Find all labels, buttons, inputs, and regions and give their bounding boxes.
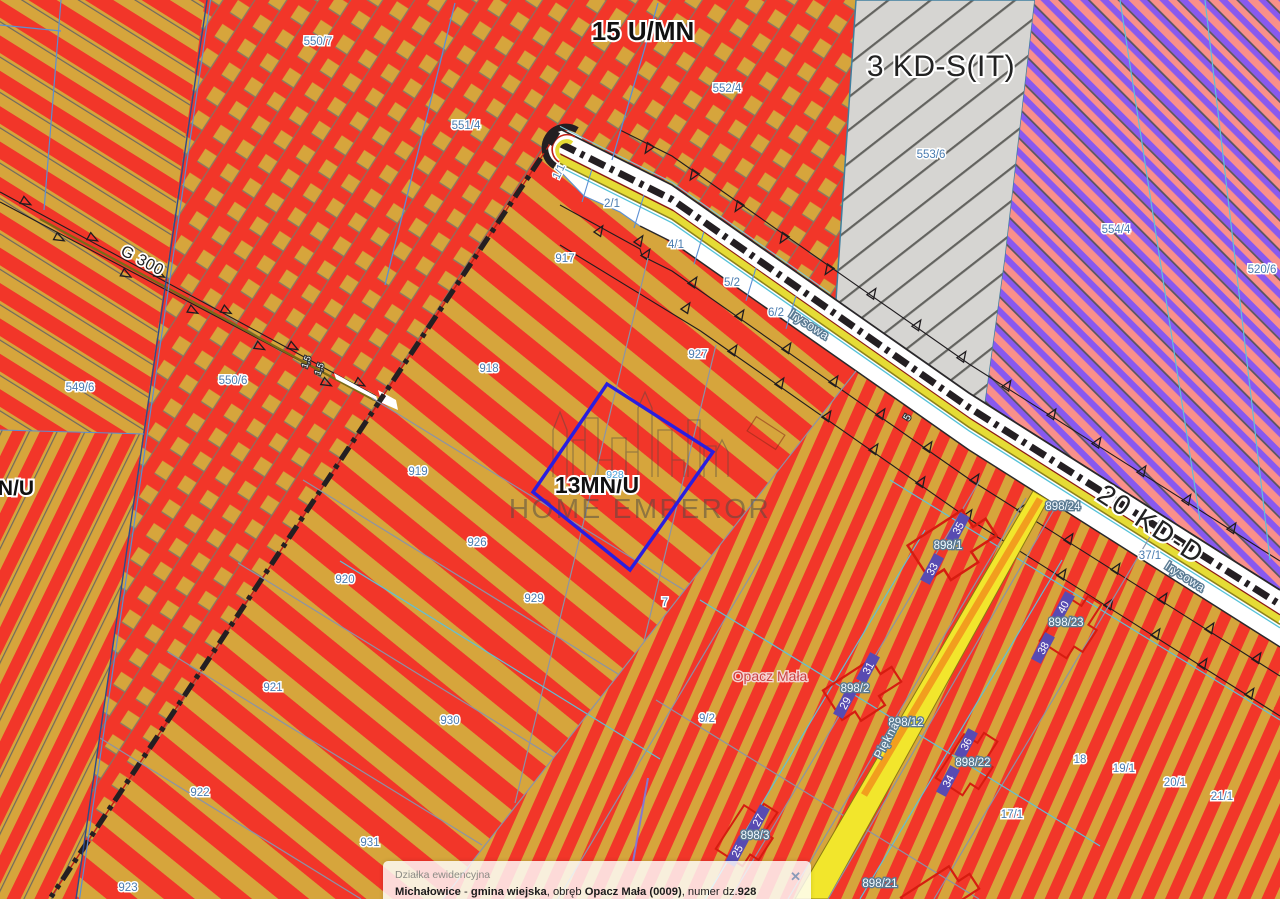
svg-text:18: 18: [1074, 754, 1087, 766]
svg-text:898/2: 898/2: [841, 683, 870, 695]
svg-text:17/1: 17/1: [1001, 809, 1023, 821]
svg-text:929: 929: [524, 593, 543, 605]
svg-text:898/23: 898/23: [1048, 617, 1083, 629]
svg-text:19/1: 19/1: [1113, 763, 1135, 775]
svg-text:2/1: 2/1: [604, 198, 620, 210]
svg-text:9/2: 9/2: [699, 713, 715, 725]
svg-text:21/1: 21/1: [1211, 791, 1233, 803]
svg-text:4/1: 4/1: [668, 239, 684, 251]
svg-text:898/22: 898/22: [955, 757, 990, 769]
svg-text:20/1: 20/1: [1164, 777, 1186, 789]
svg-text:5/2: 5/2: [724, 277, 740, 289]
svg-text:920: 920: [335, 574, 354, 586]
svg-text:898/1: 898/1: [934, 540, 963, 552]
svg-text:928: 928: [606, 469, 624, 481]
svg-text:15 U/MN: 15 U/MN: [592, 16, 695, 46]
svg-text:37/1: 37/1: [1139, 550, 1161, 562]
svg-text:549/6: 549/6: [66, 382, 95, 394]
svg-text:552/4: 552/4: [713, 83, 742, 95]
svg-text:520/6: 520/6: [1248, 264, 1277, 276]
svg-text:919: 919: [408, 466, 427, 478]
svg-text:917: 917: [555, 253, 574, 265]
svg-text:6/2: 6/2: [768, 307, 784, 319]
svg-text:926: 926: [467, 537, 486, 549]
svg-text:550/6: 550/6: [219, 375, 248, 387]
svg-text:921: 921: [263, 682, 282, 694]
svg-text:550/7: 550/7: [304, 36, 333, 48]
svg-text:Opacz Mała: Opacz Mała: [733, 668, 808, 684]
svg-text:923: 923: [118, 882, 137, 894]
svg-text:898/3: 898/3: [741, 830, 770, 842]
svg-text:898/24: 898/24: [1045, 501, 1081, 513]
svg-text:927: 927: [688, 349, 707, 361]
svg-text:898/21: 898/21: [862, 878, 897, 890]
svg-text:922: 922: [190, 787, 209, 799]
svg-text:13MN/U: 13MN/U: [555, 472, 639, 498]
svg-text:930: 930: [440, 715, 459, 727]
svg-text:553/6: 553/6: [917, 149, 946, 161]
svg-text:7: 7: [662, 597, 668, 609]
svg-text:931: 931: [360, 837, 379, 849]
svg-text:N/U: N/U: [0, 477, 34, 500]
svg-text:554/4: 554/4: [1102, 224, 1131, 236]
svg-text:HOME EMPEROR: HOME EMPEROR: [509, 493, 771, 524]
svg-text:551/4: 551/4: [452, 120, 481, 132]
svg-text:918: 918: [479, 363, 498, 375]
svg-text:3 KD-S(IT): 3 KD-S(IT): [867, 50, 1015, 83]
